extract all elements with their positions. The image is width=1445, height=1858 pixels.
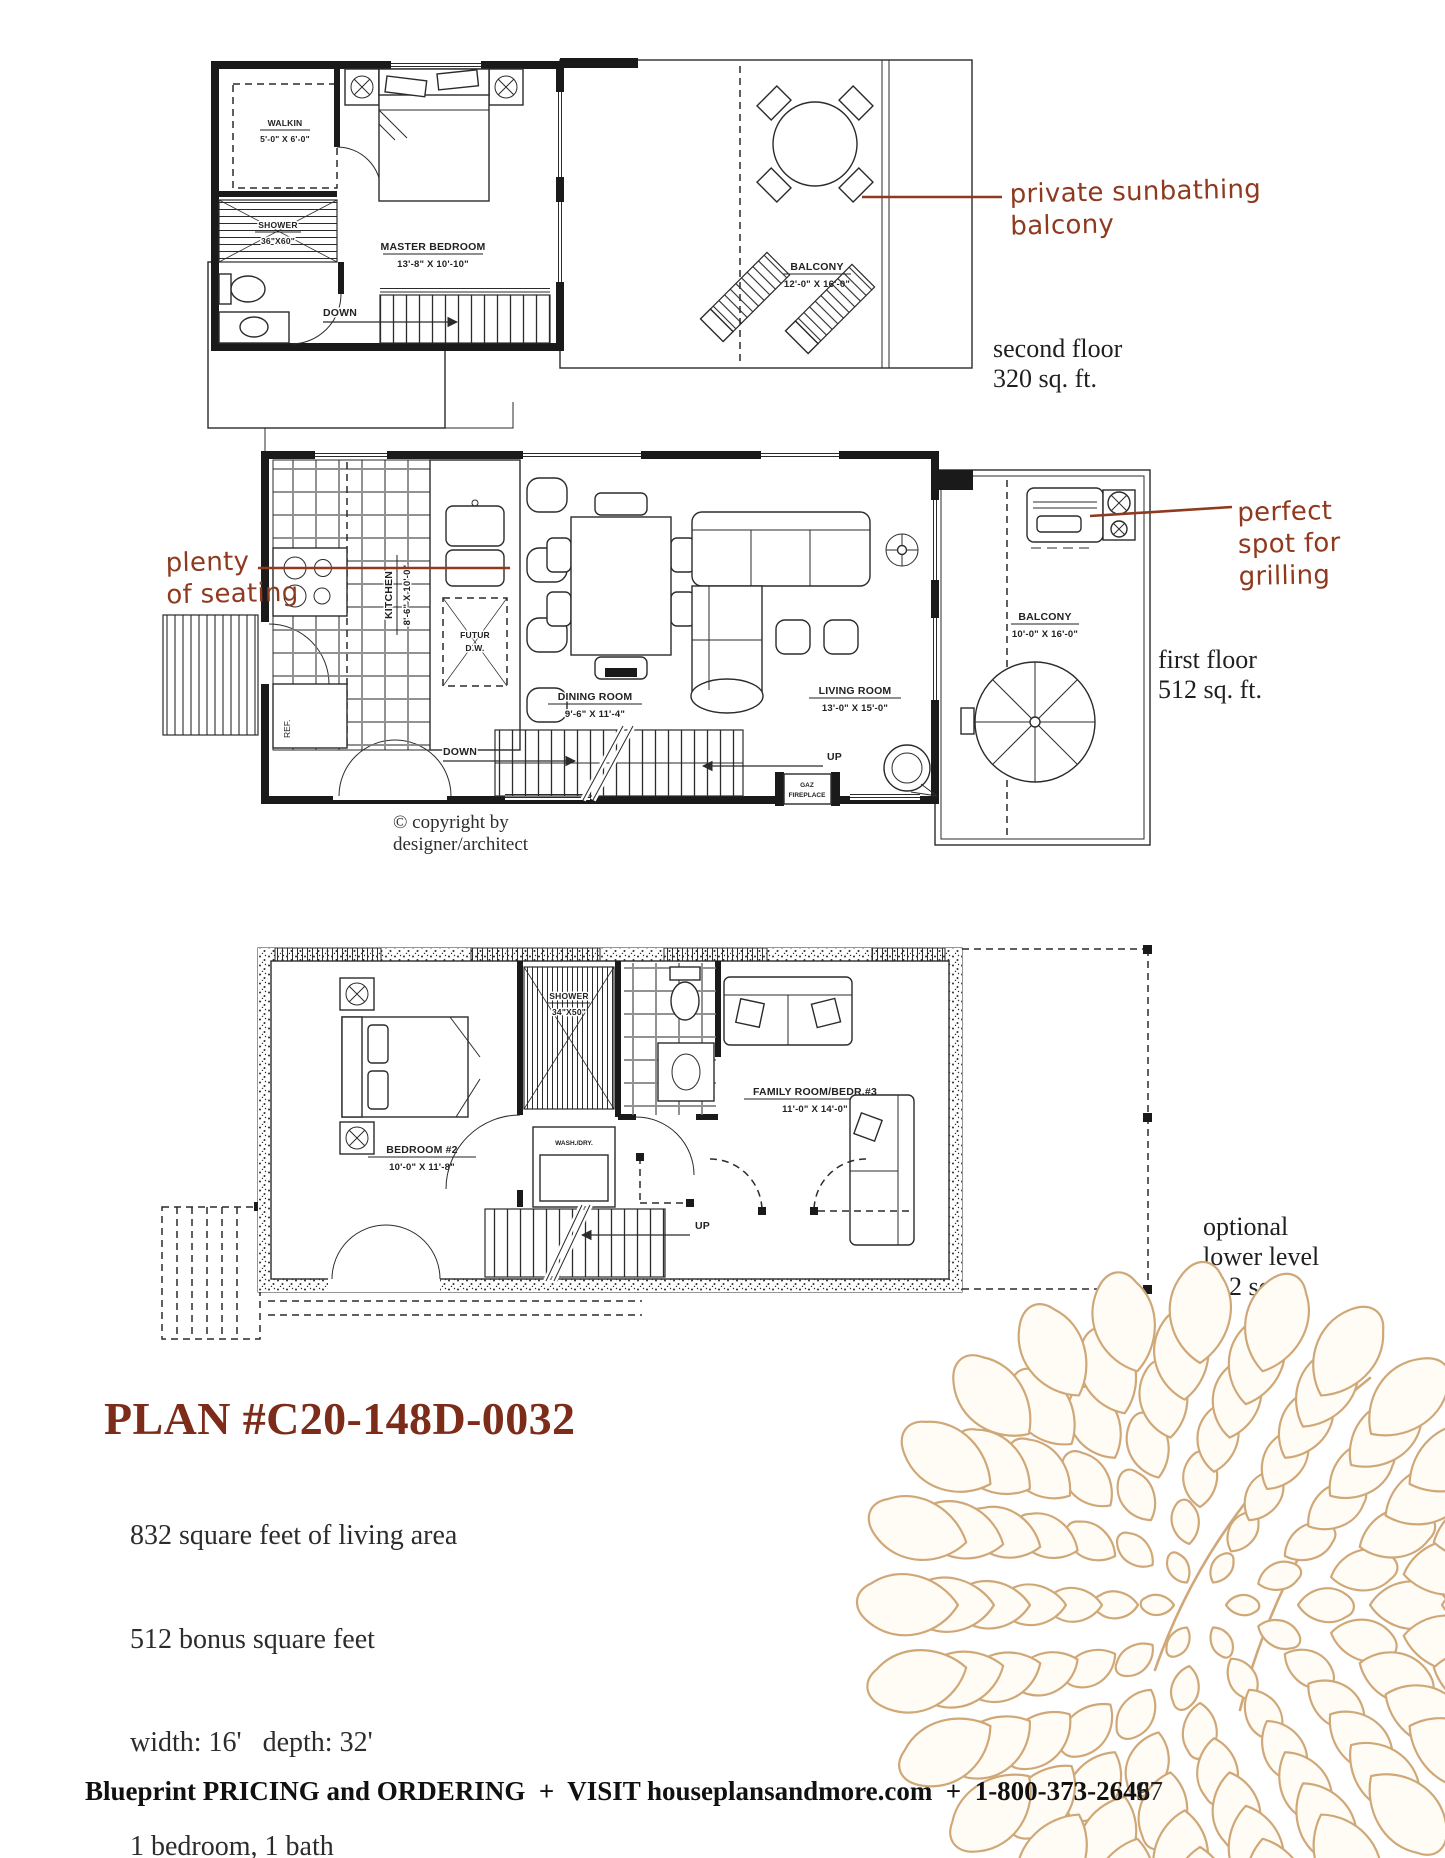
caption-first-floor: first floor 512 sq. ft. (1158, 645, 1262, 705)
bbq-grill (1027, 488, 1135, 548)
copyright-note: © copyright by designer/architect (393, 812, 528, 856)
page-number: 97 (1136, 1776, 1163, 1807)
label-balcony1: BALCONY (1018, 611, 1071, 623)
copyright-line: designer/architect (393, 834, 528, 856)
dining-table (571, 517, 671, 655)
footer-text: Blueprint PRICING and ORDERING + VISIT h… (85, 1776, 1150, 1807)
label-family-room-dim: 11'-0" X 14'-0" (782, 1104, 848, 1115)
label-balcony1-dim: 10'-0" X 16'-0" (1012, 629, 1078, 640)
shower: SHOWER 36"X60" (219, 200, 337, 262)
label-balcony2: BALCONY (790, 261, 843, 273)
label-walkin: WALKIN (268, 118, 303, 128)
washer-dryer: WASH./DRY. (533, 1127, 615, 1207)
ottoman (824, 620, 858, 654)
roof-outline (265, 402, 513, 455)
annotation-line: spot for (1238, 527, 1341, 561)
patio-table (757, 86, 873, 202)
label-shower2: SHOWER (258, 220, 297, 230)
walkout-stairs (162, 1202, 263, 1339)
annotation-line: private sunbathing (1009, 173, 1261, 210)
label-living-dim: 13'-0" X 15'-0" (822, 703, 888, 714)
caption-line: optional (1203, 1212, 1319, 1242)
ottoman (776, 620, 810, 654)
patio-outline (962, 945, 1152, 1294)
annotation-line: balcony (1010, 205, 1262, 242)
label-living: LIVING ROOM (819, 685, 892, 697)
label-kitchen: KITCHEN (383, 571, 395, 619)
sectional-sofa (692, 512, 870, 586)
bar-chair (527, 478, 567, 512)
caption-line: 512 sq. ft. (1158, 675, 1262, 705)
caption-second-floor: second floor 320 sq. ft. (993, 334, 1122, 394)
annotation-grilling: perfect spot for grilling (1237, 495, 1342, 593)
label-gaz: GAZ (800, 782, 814, 789)
spec-line: 512 bonus square feet (130, 1623, 471, 1658)
label-fireplace: FIREPLACE (789, 792, 827, 799)
catalog-page: BALCONY 12'-0" X 16'-0" WAL (0, 0, 1445, 1858)
spec-line: 832 square feet of living area (130, 1519, 471, 1554)
gas-fireplace: GAZ FIREPLACE (775, 772, 840, 806)
spec-line: 1 bedroom, 1 bath (130, 1830, 471, 1858)
annotation-seating: plenty of seating (165, 545, 299, 612)
annotation-line: perfect (1237, 495, 1340, 529)
annotation-line: grilling (1238, 559, 1341, 593)
plan-title: PLAN #C20-148D-0032 (104, 1392, 575, 1445)
label-futur: FUTUR (460, 630, 490, 640)
label-kitchen-dim: 8'-6" X 10'-0" (402, 565, 413, 626)
floorplan-first-floor: BALCONY 10'-0" X 16'-0" (155, 400, 1165, 865)
bathroom-lower (624, 963, 716, 1115)
spec-line: width: 16' depth: 32' (130, 1726, 471, 1761)
caption-line: 320 sq. ft. (993, 364, 1122, 394)
caption-line: lower level (1203, 1242, 1319, 1272)
caption-line: first floor (1158, 645, 1262, 675)
kitchen-island (430, 460, 520, 750)
label-walkin-dim: 5'-0" X 6'-0" (260, 134, 310, 144)
label-down2: DOWN (323, 307, 357, 319)
label-ref: REF. (282, 720, 292, 738)
label-washdry: WASH./DRY. (555, 1140, 593, 1147)
sink (446, 506, 504, 546)
annotation-line: of seating (166, 577, 299, 612)
label-up0: UP (695, 1220, 710, 1232)
ceiling-fan-icon (886, 534, 918, 566)
caption-line: second floor (993, 334, 1122, 364)
label-shower0: SHOWER (549, 991, 588, 1001)
floorplan-second-floor: BALCONY 12'-0" X 16'-0" WAL (205, 52, 975, 432)
deck-outline (268, 1301, 642, 1315)
label-shower0-dim: 34"X50" (552, 1007, 586, 1017)
side-deck (163, 615, 258, 735)
label-dining-dim: 9'-6" X 11'-4" (565, 709, 625, 720)
label-master-bedroom-dim: 13'-8" X 10'-10" (397, 259, 469, 270)
annotation-line: plenty (165, 545, 298, 580)
floorplan-lower-level: BEDROOM #2 10'-0" X 11'-8" SHOWER 34"X50… (150, 945, 1180, 1365)
copyright-line: © copyright by (393, 812, 528, 834)
annotation-sunbathing: private sunbathing balcony (1009, 173, 1262, 242)
shower-lower: SHOWER 34"X50" (524, 967, 614, 1109)
label-down1: DOWN (443, 746, 477, 758)
label-up1: UP (827, 751, 842, 763)
label-master-bedroom: MASTER BEDROOM (381, 241, 486, 253)
label-shower2-dim: 36"X60" (261, 236, 295, 246)
label-futur-dw: D.W. (465, 643, 484, 653)
label-bedroom2-dim: 10'-0" X 11'-8" (389, 1162, 455, 1173)
label-dining: DINING ROOM (558, 691, 633, 703)
label-bedroom2: BEDROOM #2 (386, 1144, 457, 1156)
